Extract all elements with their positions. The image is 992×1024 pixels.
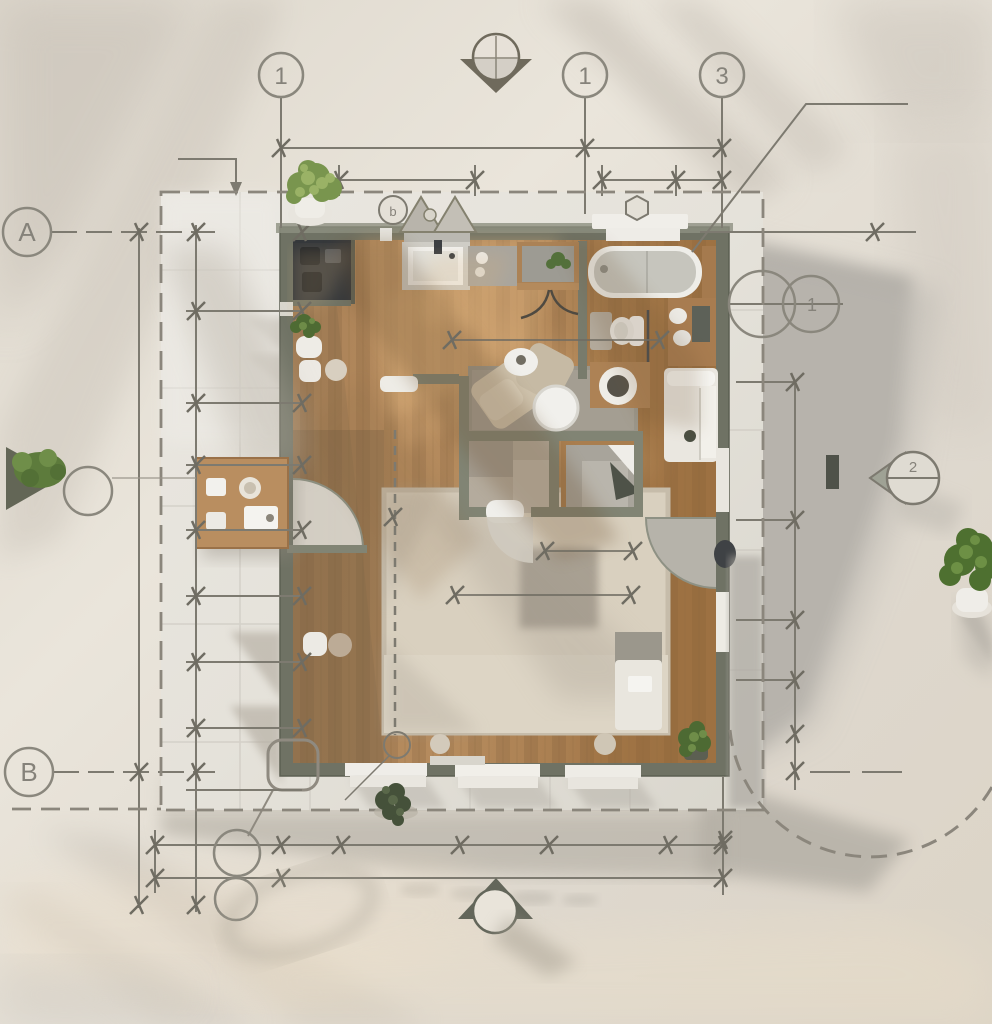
svg-text:A: A [18,217,36,247]
svg-text:b: b [389,204,396,219]
svg-text:1: 1 [807,295,817,315]
svg-text:2: 2 [909,459,917,476]
svg-text:3: 3 [715,63,728,90]
svg-text:1: 1 [274,63,287,90]
svg-text:B: B [20,757,37,787]
svg-text:1: 1 [578,63,591,90]
